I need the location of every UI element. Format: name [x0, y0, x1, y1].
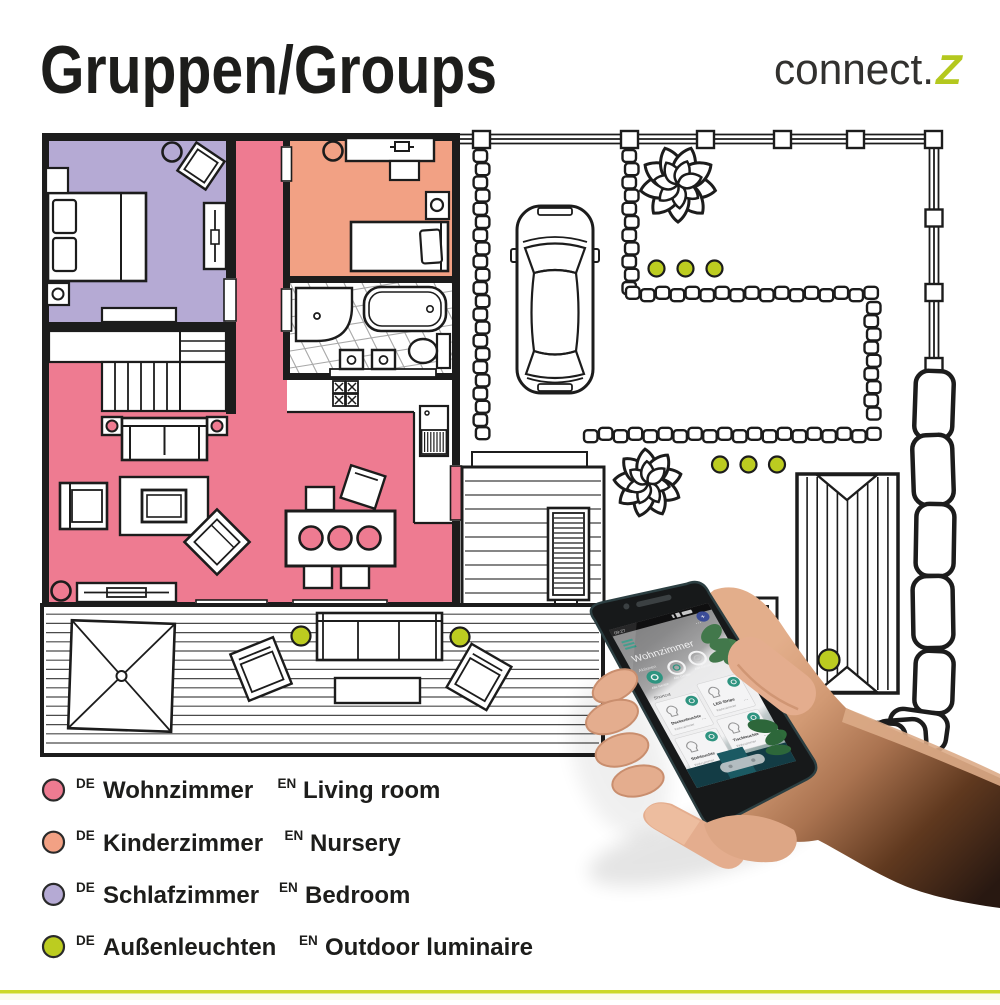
svg-text:EN: EN — [285, 828, 304, 843]
svg-text:Schlafzimmer: Schlafzimmer — [103, 882, 259, 909]
svg-text:DE: DE — [76, 933, 95, 948]
svg-text:Außenleuchten: Außenleuchten — [103, 934, 276, 961]
svg-text:Nursery: Nursery — [310, 830, 401, 857]
svg-text:DE: DE — [76, 880, 95, 895]
svg-text:DE: DE — [76, 776, 95, 791]
svg-text:EN: EN — [278, 776, 297, 791]
svg-text:connect.: connect. — [774, 45, 934, 94]
svg-text:DE: DE — [76, 828, 95, 843]
svg-text:Outdoor luminaire: Outdoor luminaire — [325, 934, 533, 961]
svg-text:EN: EN — [299, 933, 318, 948]
svg-text:Z: Z — [935, 46, 963, 93]
svg-text:Kinderzimmer: Kinderzimmer — [103, 830, 263, 857]
svg-text:Bedroom: Bedroom — [305, 882, 410, 909]
svg-text:Living room: Living room — [303, 777, 440, 804]
svg-text:Wohnzimmer: Wohnzimmer — [103, 777, 253, 804]
svg-text:Gruppen/Groups: Gruppen/Groups — [40, 32, 497, 108]
svg-text:EN: EN — [279, 880, 298, 895]
